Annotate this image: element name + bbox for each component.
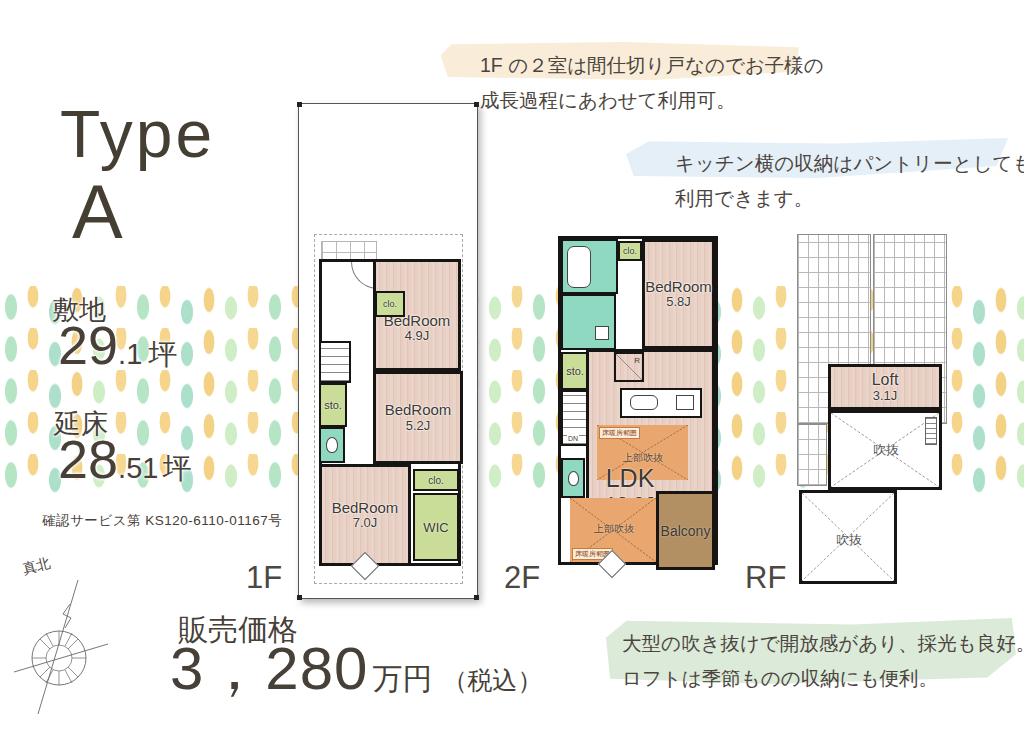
room-closet-1f-b: clo. [413,469,459,491]
floor-heating-label: 床暖房範囲 [599,427,640,439]
floor-area-frac: .51 [118,452,158,485]
stairs-1f [319,341,351,383]
void-upper-rf: 吹抜 [828,410,942,490]
room-loft: Loft 3.1J [828,364,942,410]
void-lower-rf: 吹抜 [799,490,897,584]
note-partition-line1: 1F の２室は間仕切り戸なのでお子様の [480,48,824,83]
plan-rf: Loft 3.1J 吹抜 吹抜 [795,232,955,588]
room-name: BedRoom [385,402,452,419]
fridge-label: R [634,356,640,365]
void-label: 上部吹抜 [594,522,634,536]
void-label: 上部吹抜 [623,451,663,465]
price-unit: 万円 [372,659,432,700]
site-area-unit: 坪 [148,335,177,375]
flyer-page: Type A 敷地 29 .1 坪 延床 28 .51 坪 確認サービス第 KS… [0,0,1024,730]
toilet-2f [561,458,585,498]
price-tax-note: （税込） [442,664,542,697]
roof-strip [797,424,827,486]
note-partition: 1F の２室は間仕切り戸なのでお子様の 成長過程にあわせて利用可。 [480,48,824,118]
type-letter: A [72,168,123,255]
room-closet-2f: clo. [618,241,642,261]
room-label: clo. [623,246,637,256]
site-area-frac: .1 [118,338,142,371]
room-label: sto. [566,365,584,377]
floor-label-1f: 1F [246,560,282,596]
site-corner-dot [474,595,479,600]
room-bedroom-7-0: BedRoom 7.0J [319,464,411,566]
room-name: BedRoom [645,279,712,296]
certification-number: 確認サービス第 KS120-6110-01167号 [42,512,282,530]
washbasin-icon [595,326,609,340]
room-name: Loft [872,371,899,389]
void-label: 吹抜 [873,441,899,459]
site-corner-dot [297,102,302,107]
room-closet-1f-a: clo. [375,291,405,317]
site-corner-dot [474,102,479,107]
room-size: 5.8J [666,295,691,309]
note-loft-line1: 大型の吹き抜けで開放感があり、採光も良好。 [622,626,1024,661]
room-label: clo. [428,475,444,486]
washroom-2f [561,294,616,350]
room-size: 3.1J [873,389,898,403]
plan-1f: BedRoom 4.9J clo. BedRoom 5.2J sto. BedR… [298,103,478,599]
note-loft-line2: ロフトは季節ものの収納にも便利。 [622,661,1024,696]
room-size: 7.0J [353,516,378,530]
balcony: Balcony [656,491,715,570]
room-label: Balcony [661,523,711,539]
room-label: WIC [423,520,448,535]
room-storage-1f: sto. [319,383,347,427]
compass-label: 真北 [21,555,52,577]
room-wic: WIC [413,493,459,561]
price-row: 3，280 万円 （税込） [170,636,542,702]
room-label: clo. [383,299,397,309]
room-storage-2f: sto. [561,352,589,390]
fridge-slot: R [614,352,644,382]
note-partition-line2: 成長過程にあわせて利用可。 [480,83,824,118]
stairs-dn-label: DN [567,435,579,442]
price-amount: 3，280 [170,636,368,702]
room-size: 4.9J [405,329,430,343]
floor-area-unit: 坪 [162,449,191,489]
bathtub-icon [567,246,591,288]
site-corner-dot [297,595,302,600]
room-size: 5.2J [406,419,431,433]
void-label: 吹抜 [836,531,862,549]
site-area-int: 29 [58,318,118,372]
loft-ladder-icon [925,417,937,445]
plan-2f: clo. BedRoom 5.8J sto. DN R [558,236,720,576]
toilet-icon [568,471,579,486]
room-name: BedRoom [332,500,399,517]
room-bedroom-5-2: BedRoom 5.2J [373,371,463,464]
floor-area-value: 28 .51 坪 [58,432,191,489]
kitchen-counter [620,388,702,418]
bathroom-2f [561,239,618,294]
note-pantry-line1: キッチン横の収納はパントリーとしても [675,146,1024,181]
stove-icon [676,395,694,410]
floor-area-int: 28 [58,432,118,486]
note-loft: 大型の吹き抜けで開放感があり、採光も良好。 ロフトは季節ものの収納にも便利。 [622,626,1024,696]
site-area-value: 29 .1 坪 [58,318,177,375]
note-pantry: キッチン横の収納はパントリーとしても 利用できます。 [675,146,1024,216]
floor-label-2f: 2F [504,560,540,596]
room-label: sto. [324,399,342,411]
note-pantry-line2: 利用できます。 [675,181,1024,216]
room-bedroom-5-8: BedRoom 5.8J [642,239,715,349]
stairs-2f: DN [561,390,589,446]
sink-icon [630,395,658,410]
ldk-name: LDK [592,464,668,493]
toilet-1f [319,427,345,463]
compass-north-icon: 真北 [8,552,120,724]
floor-label-rf: RF [745,560,786,596]
toilet-icon [326,437,338,453]
type-title: Type [60,96,215,172]
